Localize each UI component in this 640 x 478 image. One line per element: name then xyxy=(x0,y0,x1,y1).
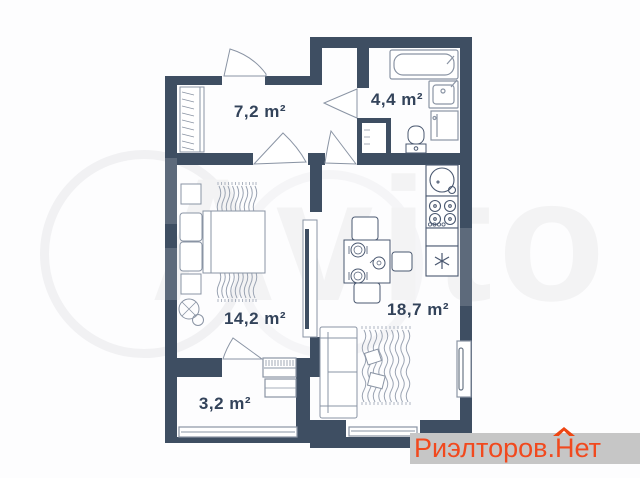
hallway-furniture xyxy=(180,87,204,152)
pillow xyxy=(180,213,202,241)
entrance-door xyxy=(224,49,266,76)
tv-unit xyxy=(303,220,317,337)
realtorov-net-logo: Риэлторов.Нет xyxy=(414,433,601,464)
cushion xyxy=(368,372,386,388)
nightstand-bottom xyxy=(181,274,201,294)
dining-set xyxy=(344,217,412,303)
hallway-area-label: 7,2 m² xyxy=(215,102,305,122)
kitchen-counter xyxy=(426,228,458,246)
wardrobe xyxy=(180,87,204,152)
living-east-window xyxy=(457,341,471,397)
bedroom-door xyxy=(254,133,306,164)
kitchen-living-area-label: 18,7 m² xyxy=(378,300,458,320)
washing-machine xyxy=(431,111,458,140)
sofa xyxy=(320,327,357,418)
chair-bottom xyxy=(354,283,380,303)
bathroom-door xyxy=(324,89,357,118)
living-furniture xyxy=(320,326,410,418)
pillow xyxy=(180,242,202,271)
kitchen-appliances xyxy=(426,165,458,276)
nightstand-top xyxy=(181,184,201,204)
logo-text-part2: Нет xyxy=(555,433,601,463)
bed xyxy=(203,211,265,273)
cushion xyxy=(364,349,381,365)
chair-right xyxy=(392,252,412,271)
balcony-door xyxy=(223,338,262,359)
floor-plan-drawing xyxy=(0,0,640,478)
floor-lamp xyxy=(179,299,204,326)
logo-text-part1: Риэлторов. xyxy=(414,433,555,463)
bedroom-area-label: 14,2 m² xyxy=(210,309,300,329)
realtorov-net-logo-bar: Риэлторов.Нет xyxy=(410,433,640,464)
fridge xyxy=(426,246,458,276)
floor-plan-page: Avito xyxy=(0,0,640,478)
toilet xyxy=(406,126,426,153)
chair-top xyxy=(352,217,378,240)
bathroom-area-label: 4,4 m² xyxy=(357,90,437,110)
bathtub xyxy=(390,50,458,79)
shaft xyxy=(357,118,391,158)
balcony-south-window xyxy=(179,427,297,437)
stove xyxy=(426,196,458,228)
living-south-window xyxy=(346,420,420,437)
living-rug xyxy=(362,326,410,405)
kitchen-sink xyxy=(426,165,458,196)
bedroom-balcony-window xyxy=(263,358,296,377)
kitchen-door xyxy=(325,131,356,164)
balcony-area-label: 3,2 m² xyxy=(180,394,270,414)
